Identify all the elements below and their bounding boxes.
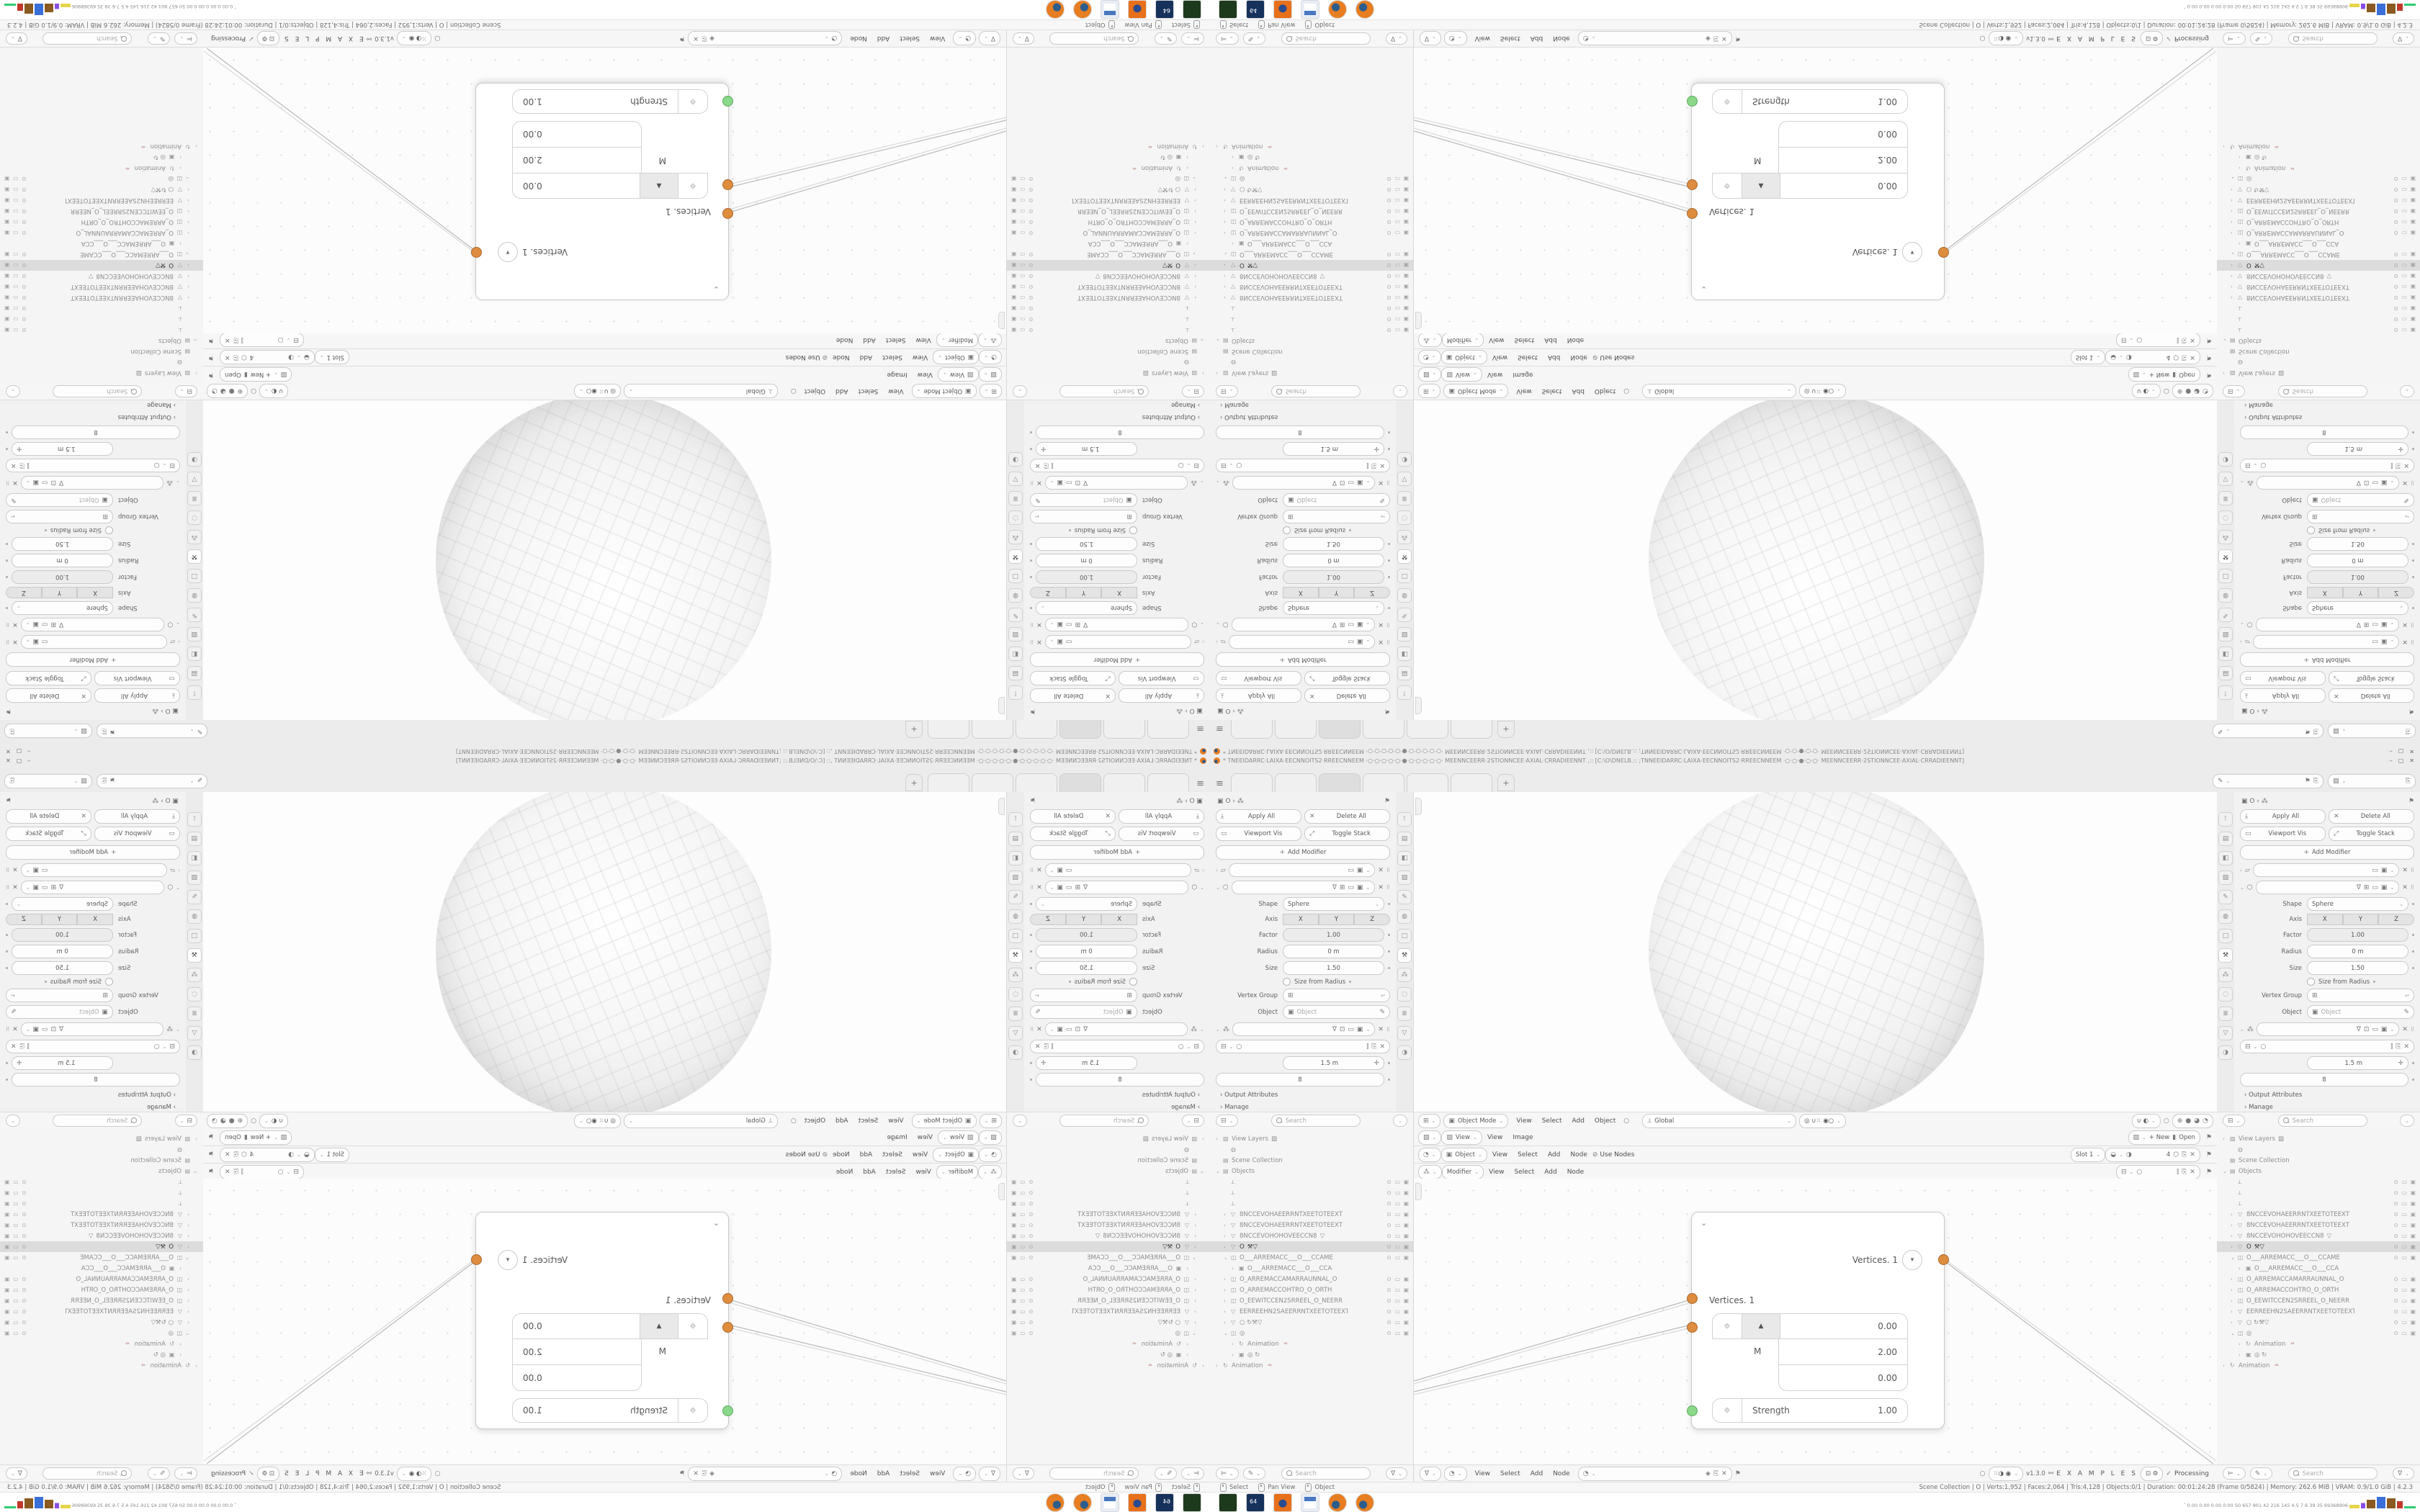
pin-icon[interactable]: ⚑ — [1735, 35, 1741, 42]
editor-type-button[interactable]: ▨⌄ — [979, 368, 1002, 382]
pin-icon[interactable]: ⚑ — [2206, 354, 2212, 361]
outliner-row[interactable]: ⌄ ◫ O___ARREMACC___O___CCAME ⊙ ▭ ▣ — [1210, 249, 1413, 260]
factor-field[interactable]: 1.00 — [12, 570, 113, 584]
properties-tab[interactable]: ≣ — [1008, 491, 1023, 505]
outliner-filter-button[interactable]: ∇⌄ — [1013, 32, 1034, 45]
menu-item[interactable]: Node — [1570, 354, 1587, 361]
menu-hamburger-icon[interactable]: ≡ — [1196, 778, 1204, 789]
hide-eye-toggle[interactable]: ⊙ — [2394, 294, 2398, 301]
outliner-row[interactable]: › ◫ O_ARREMACCOHTRO_O_ORTH ⊙ ▭ ▣ — [1007, 1284, 1210, 1295]
hide-eye-toggle[interactable]: ⊙ — [1028, 1254, 1033, 1261]
viewlayer-selector[interactable]: ▨ ⌄ ⎘ — [4, 724, 92, 738]
close-button[interactable]: ✕ — [2409, 757, 2414, 764]
render-camera-toggle[interactable]: ▣ — [4, 284, 9, 290]
outliner-row[interactable]: › ▽ O ⚒▽ ⊙ ▭ ▣ — [1007, 1241, 1210, 1252]
properties-tab[interactable]: ◍ — [2218, 588, 2233, 603]
hide-eye-toggle[interactable]: ⊙ — [22, 1200, 26, 1207]
modifier-row-expanded[interactable]: ⌄⬡ ∇⊞▭▣⌄ ✕⠿ — [6, 618, 180, 631]
snapping-toggles[interactable]: ◎ ∪⁙ ◉○⌄ — [574, 384, 621, 399]
viewport-vis-button[interactable]: ▭Viewport Vis — [2240, 671, 2326, 685]
shading-mode-button[interactable]: ● — [229, 1117, 235, 1125]
outliner-search[interactable]: Search — [2288, 1467, 2378, 1480]
properties-tab[interactable]: ⁂ — [1397, 968, 1412, 982]
render-camera-toggle[interactable]: ▣ — [4, 186, 9, 193]
viewport-toggle[interactable]: ▭ — [1020, 1179, 1025, 1185]
shading-mode-button[interactable]: ◔ — [2202, 1117, 2208, 1125]
editor-type-button[interactable]: ◔⌄ — [1444, 32, 1467, 46]
use-nodes-check-icon[interactable]: ⊘ — [1592, 1151, 1598, 1158]
properties-tab[interactable]: ◑ — [2218, 452, 2233, 467]
hide-eye-toggle[interactable]: ⊙ — [2394, 316, 2398, 323]
count-field[interactable]: 8 — [1216, 1073, 1384, 1086]
examples-menu[interactable]: E X A M P L E S — [2056, 1470, 2138, 1477]
viewport-toggle[interactable]: ▭ — [13, 1233, 18, 1239]
properties-tab[interactable]: ◍ — [1397, 909, 1412, 924]
hide-eye-toggle[interactable]: ⊙ — [1028, 1233, 1033, 1239]
outliner-row[interactable]: › ↻ Animation ⁴² ⊙ ▭ ▣ — [2217, 163, 2420, 174]
properties-tab[interactable]: ▤ — [1008, 666, 1023, 680]
options-button[interactable]: ⌄ — [1393, 385, 1407, 397]
hide-eye-toggle[interactable]: ⊙ — [1387, 1200, 1391, 1207]
count-field[interactable]: 8 — [1036, 1073, 1204, 1086]
size-from-radius-radio[interactable] — [1129, 978, 1137, 986]
viewport-toggle[interactable]: ▭ — [2402, 251, 2407, 258]
outliner-row[interactable]: › ▽ EERREEHN2SAEERRNTXEETOTEEXT ⊙ ▭ ▣ — [1210, 195, 1413, 206]
render-camera-toggle[interactable]: ▣ — [4, 273, 9, 279]
taskbar-app-icon[interactable] — [1073, 0, 1092, 19]
viewport-vis-button[interactable]: ▭Viewport Vis — [1119, 827, 1204, 841]
menu-item[interactable]: Select — [886, 337, 906, 344]
render-camera-toggle[interactable]: ▣ — [1011, 327, 1016, 333]
hide-eye-toggle[interactable]: ⊙ — [1028, 208, 1033, 215]
properties-tab[interactable]: □ — [1008, 929, 1023, 943]
outliner-row[interactable]: › ▽ EERREEHN2SAEERRNTXEETOTEEXT ⊙ ▭ ▣ — [0, 1306, 203, 1317]
shape-dropdown[interactable]: Sphere⌄ — [12, 601, 113, 615]
modifier-row-collapsed[interactable]: ›▱ ▭▣⌄ ✕⠿ — [2240, 635, 2414, 649]
viewport-vis-button[interactable]: ▭Viewport Vis — [1216, 827, 1301, 841]
outliner-row[interactable]: › ▽ EERREEHN2SAEERRNTXEETOTEEXT ⊙ ▭ ▣ — [1210, 1306, 1413, 1317]
hide-eye-toggle[interactable]: ⊙ — [22, 1233, 26, 1239]
render-camera-toggle[interactable]: ▣ — [4, 1330, 9, 1336]
open-image-button[interactable]: Open — [225, 372, 241, 379]
properties-tab[interactable]: ▤ — [1008, 832, 1023, 846]
cube-sphere-object[interactable] — [436, 393, 771, 720]
taskbar-app-icon[interactable] — [1301, 1493, 1319, 1512]
outliner-row[interactable]: ⌄ ▤ Objects ⊙ ▭ ▣ — [1007, 1166, 1210, 1176]
menu-item[interactable]: View — [918, 372, 933, 379]
outliner-filter-button[interactable]: ∇⌄ — [1386, 32, 1407, 45]
apply-all-button[interactable]: ⤓Apply All — [1119, 809, 1204, 824]
viewport-toggle[interactable]: ▭ — [1020, 1200, 1025, 1207]
viewport-3d[interactable]: ⊞⌄ ▣Object Mode⌄ ViewSelectAddObject ○ ⟂… — [1413, 792, 2218, 1129]
modifier-row-expanded[interactable]: ⌄⬡ ∇⊞▭▣⌄ ✕⠿ — [6, 881, 180, 894]
outliner-row[interactable]: › ▽ ○ ↻⚒▽ ⊙ ▭ ▣ — [1007, 1317, 1210, 1328]
properties-tab[interactable]: ⊺ — [1008, 812, 1023, 827]
viewport-toggle[interactable]: ▭ — [1020, 1222, 1025, 1228]
hide-eye-toggle[interactable]: ⊙ — [22, 1211, 26, 1218]
viewport-toggle[interactable]: ▭ — [1020, 305, 1025, 312]
pin-icon[interactable]: ⚑ — [2206, 1151, 2212, 1158]
render-camera-toggle[interactable]: ▣ — [4, 197, 9, 204]
outliner-row[interactable]: › ▽ 8NCCEVOHAEERRNTXEETOTEEXT ⊙ ▭ ▣ — [0, 282, 203, 292]
length-field[interactable]: 1.5 m✛ — [2307, 1056, 2408, 1070]
outliner-row[interactable]: ▤ Scene Collection ⊙ ▭ ▣ — [1210, 1155, 1413, 1166]
outliner-mode-button[interactable]: ⊨⌄ — [174, 1467, 197, 1480]
outliner-row[interactable]: ⟂ ⊙ ▭ ▣ — [1007, 1176, 1210, 1187]
hide-eye-toggle[interactable]: ⊙ — [2394, 186, 2398, 193]
taskbar-app-icon[interactable] — [1155, 1493, 1174, 1512]
nodegroup-selector[interactable]: ⊟⌄○⫿⎘✕ — [6, 1040, 180, 1053]
viewport-toggle[interactable]: ▭ — [2402, 273, 2407, 279]
input-socket-vector[interactable] — [722, 179, 733, 190]
outliner-display-button[interactable]: ✎⌄ — [1155, 32, 1177, 45]
modifier-row-collapsed[interactable]: ›▱ ▭▣⌄ ✕⠿ — [6, 863, 180, 877]
object-field[interactable]: ▣Object✎ — [1030, 1005, 1137, 1019]
taskbar-app-icon[interactable] — [1328, 0, 1347, 19]
minimize-button[interactable]: – — [2390, 749, 2393, 755]
properties-tab[interactable]: ⚒ — [1397, 948, 1412, 963]
hide-eye-toggle[interactable]: ⊙ — [1387, 1330, 1391, 1336]
outliner-row[interactable]: › ▽ 8NCCEVOHOHOVEECCN8 ▽ ⊙ ▭ ▣ — [0, 271, 203, 282]
outliner-row[interactable]: › ↻ Animation ⁴² ⊙ ▭ ▣ — [1007, 163, 1210, 174]
outliner-row[interactable]: ⟂ ⊙ ▭ ▣ — [1210, 1176, 1413, 1187]
viewport-toggle[interactable]: ▭ — [1020, 273, 1025, 279]
mode-dropdown[interactable]: ▣Object Mode⌄ — [1443, 1114, 1508, 1128]
outliner-row[interactable]: › ▽ 8NCCEVOHAEERRNTXEETOTEEXT ⊙ ▭ ▣ — [2217, 292, 2420, 303]
viewport-toggle[interactable]: ▭ — [13, 1330, 18, 1336]
properties-tab[interactable]: ◧ — [2218, 851, 2233, 865]
length-field[interactable]: 1.5 m✛ — [1036, 442, 1137, 456]
properties-tab[interactable]: ◍ — [187, 909, 202, 924]
outliner-row[interactable]: › ▽ 8NCCEVOHAEERRNTXEETOTEEXT ⊙ ▭ ▣ — [1210, 1220, 1413, 1230]
menu-item[interactable]: Select — [882, 354, 902, 361]
menu-item[interactable]: Add — [863, 1169, 875, 1176]
render-camera-toggle[interactable]: ▣ — [1011, 208, 1016, 215]
properties-tab[interactable]: ▽ — [1008, 1026, 1023, 1040]
hide-eye-toggle[interactable]: ⊙ — [2394, 1233, 2398, 1239]
outliner-row[interactable]: › ▽ ○ ↻⚒▽ ⊙ ▭ ▣ — [1210, 1317, 1413, 1328]
render-camera-toggle[interactable]: ▣ — [2411, 294, 2416, 301]
outliner-row[interactable]: › ▽ EERREEHN2SAEERRNTXEETOTEEXT ⊙ ▭ ▣ — [1007, 195, 1210, 206]
outliner-row[interactable]: › ↻ Animation ⁴² ⊙ ▭ ▣ — [1007, 141, 1210, 152]
pin-icon[interactable]: ⚑ — [1384, 798, 1390, 805]
add-modifier-button[interactable]: +Add Modifier — [6, 652, 180, 667]
render-camera-toggle[interactable]: ▣ — [1011, 1254, 1016, 1261]
render-camera-toggle[interactable]: ▣ — [4, 1276, 9, 1282]
manage-expander[interactable]: › Manage — [1220, 1104, 1390, 1111]
hide-eye-toggle[interactable]: ⊙ — [1028, 294, 1033, 301]
render-camera-toggle[interactable]: ▣ — [1404, 1308, 1409, 1315]
toggle-stack-button[interactable]: ⤢Toggle Stack — [1304, 827, 1390, 841]
vector-x-field[interactable]: 0.00 — [512, 173, 640, 199]
vector-z-field[interactable]: 0.00 — [512, 1365, 642, 1391]
hide-eye-toggle[interactable]: ⊙ — [1387, 1297, 1391, 1304]
render-camera-toggle[interactable]: ▣ — [4, 1189, 9, 1196]
modifier-row-collapsed[interactable]: ›▱ ▭▣⌄ ✕⠿ — [2240, 863, 2414, 877]
render-camera-toggle[interactable]: ▣ — [2411, 1211, 2416, 1218]
apply-all-button[interactable]: ⤓Apply All — [1216, 809, 1301, 824]
outliner-row[interactable]: › ◫ O_ARREMACCOHTRO_O_ORTH ⊙ ▭ ▣ — [2217, 217, 2420, 228]
overlay-circle-icon[interactable]: ○ — [2164, 1117, 2169, 1125]
render-camera-toggle[interactable]: ▣ — [1011, 1200, 1016, 1207]
axis-option[interactable]: X — [1283, 914, 1319, 925]
input-socket-strength[interactable] — [722, 96, 733, 107]
material-selector[interactable]: ◒⌄◑ 4 ⬡⎘✕ — [220, 1148, 315, 1162]
outliner-row[interactable]: ⟂ ⊙ ▭ ▣ — [2217, 1187, 2420, 1198]
processing-check-icon[interactable]: ✓ — [248, 35, 254, 42]
editor-type-button[interactable]: ⊟⌄ — [1216, 1115, 1238, 1127]
add-modifier-button[interactable]: +Add Modifier — [1216, 845, 1390, 860]
editor-type-button[interactable]: ◔⌄ — [979, 1148, 1002, 1162]
factor-field[interactable]: 1.00 — [1036, 928, 1137, 942]
outliner-row[interactable]: ⌄ ▤ Objects ⊙ ▭ ▣ — [1210, 336, 1413, 346]
outliner-filter-button[interactable]: ∇⌄ — [6, 1467, 27, 1480]
menu-item[interactable]: Object — [1595, 1117, 1615, 1125]
menu-item[interactable]: Node — [850, 35, 867, 42]
viewport-toggle[interactable]: ▭ — [13, 1276, 18, 1282]
axis-segmented[interactable]: XYZ — [1283, 914, 1390, 925]
output-socket[interactable] — [471, 1254, 482, 1265]
viewport-vis-button[interactable]: ▭Viewport Vis — [1216, 671, 1301, 685]
outliner-row[interactable]: ⌄ ◫ O___ARREMACC___O___CCAME ⊙ ▭ ▣ — [1007, 249, 1210, 260]
hide-eye-toggle[interactable]: ⊙ — [1028, 197, 1033, 204]
manage-expander[interactable]: › Manage — [1220, 401, 1390, 408]
viewport-toggle[interactable]: ▭ — [1395, 1189, 1400, 1196]
apply-all-button[interactable]: ⤓Apply All — [2240, 688, 2326, 703]
outliner-row[interactable]: › ◫ O_ARREMACCOHTRO_O_ORTH ⊙ ▭ ▣ — [1210, 1284, 1413, 1295]
outliner-row[interactable]: ⌄ ◫ O___ARREMACC___O___CCAME ⊙ ▭ ▣ — [1007, 1252, 1210, 1263]
menu-item[interactable]: Add — [860, 354, 872, 361]
workspace-tab[interactable] — [1451, 773, 1492, 792]
outliner-row[interactable]: › ▽ ○ ↻⚒▽ ⊙ ▭ ▣ — [1210, 184, 1413, 195]
menu-item[interactable]: Add — [1531, 35, 1543, 42]
render-camera-toggle[interactable]: ▣ — [1404, 262, 1409, 269]
viewport-toggle[interactable]: ▭ — [13, 1189, 18, 1196]
shading-mode-button[interactable]: ◕ — [220, 1117, 226, 1125]
hide-eye-toggle[interactable]: ⊙ — [22, 1297, 26, 1304]
duplicate-icon[interactable]: ⎘ — [2406, 727, 2411, 734]
editor-type-button[interactable]: ▨⌄ — [1418, 368, 1441, 382]
viewport-toggle[interactable]: ▭ — [13, 1297, 18, 1304]
nodegroup-name-field[interactable]: ◔⌄ ◈⎘✕ — [688, 32, 842, 46]
outliner-mode-button[interactable]: ⊨⌄ — [2223, 32, 2246, 45]
toolbar-handle[interactable] — [1415, 1183, 1422, 1200]
strength-field[interactable]: ⟐ Strength 1.00 — [512, 89, 708, 114]
axis-option[interactable]: X — [2307, 587, 2343, 598]
outliner-mode-button[interactable]: ⊨⌄ — [1216, 32, 1239, 45]
geonodes-modifier-row[interactable]: ⌄⁂ ∇⊡▭▣⌄ ✕⠿ — [1030, 476, 1204, 490]
viewport-toggle[interactable]: ▭ — [1395, 1233, 1400, 1239]
toolbar-handle[interactable] — [998, 1183, 1005, 1200]
hide-eye-toggle[interactable]: ⊙ — [1028, 1243, 1033, 1250]
size-field[interactable]: 1.50 — [12, 961, 113, 975]
properties-tab[interactable]: ⊺ — [1397, 685, 1412, 700]
annotate-circle-icon[interactable]: ○ — [1623, 1117, 1629, 1125]
outliner-mode-button[interactable]: ⊨⌄ — [1216, 1467, 1239, 1480]
pin-icon[interactable]: ⚑ — [2206, 337, 2212, 344]
overlay-dot-icon[interactable]: ○ — [1980, 1470, 1986, 1477]
render-camera-toggle[interactable]: ▣ — [4, 1254, 9, 1261]
viewport-toggle[interactable]: ▭ — [13, 1308, 18, 1315]
outliner-row[interactable]: › ▽ 8NCCEVOHOHOVEECCN8 ▽ ⊙ ▭ ▣ — [1007, 1230, 1210, 1241]
editor-type-button[interactable]: ⊞⌄ — [980, 384, 1002, 399]
properties-tab[interactable]: ◍ — [1008, 588, 1023, 603]
overlay-circle-icon[interactable]: ○ — [251, 388, 256, 395]
outliner-row[interactable]: ◍ ⊙ ▭ ▣ — [1007, 357, 1210, 368]
outliner-mode-button[interactable]: ⊨⌄ — [2223, 1467, 2246, 1480]
options-button[interactable]: ⌄ — [2400, 385, 2414, 397]
manage-expander[interactable]: › Manage — [6, 401, 176, 408]
vertex-group-field[interactable]: ⊞↩ — [1283, 510, 1390, 523]
hide-eye-toggle[interactable]: ⊙ — [1387, 327, 1391, 333]
hide-eye-toggle[interactable]: ⊙ — [1387, 1254, 1391, 1261]
add-modifier-button[interactable]: +Add Modifier — [6, 845, 180, 860]
viewport-toggle[interactable]: ▭ — [1020, 219, 1025, 225]
pin-icon[interactable]: ⚑ — [1735, 1470, 1741, 1477]
properties-search[interactable]: Search — [1059, 385, 1149, 397]
outliner-row[interactable]: ⌄ ◫ ◎ ⊙ ▭ ▣ — [2217, 174, 2420, 184]
toolbar-handle[interactable] — [1415, 312, 1422, 329]
hide-eye-toggle[interactable]: ⊙ — [22, 208, 26, 215]
render-camera-toggle[interactable]: ▣ — [1011, 1319, 1016, 1326]
viewport-toggle[interactable]: ▭ — [2402, 305, 2407, 312]
examples-menu[interactable]: E X A M P L E S — [282, 1470, 364, 1477]
properties-tab[interactable]: ◌ — [2218, 510, 2233, 525]
input-socket-vector[interactable] — [1687, 179, 1698, 190]
outliner-row[interactable]: › ▽ 8NCCEVOHAEERRNTXEETOTEEXT ⊙ ▭ ▣ — [2217, 1220, 2420, 1230]
output-attributes-expander[interactable]: › Output Attributes — [1220, 1092, 1390, 1099]
size-from-radius-radio[interactable] — [2307, 526, 2315, 534]
outliner-row[interactable]: › ↻ Animation ⁴² ⊙ ▭ ▣ — [2217, 1338, 2420, 1349]
size-field[interactable]: 1.50 — [2307, 537, 2408, 551]
hide-eye-toggle[interactable]: ⊙ — [1387, 197, 1391, 204]
outliner-row[interactable]: › ↻ Animation ⁴² ⊙ ▭ ▣ — [2217, 141, 2420, 152]
properties-tab[interactable]: ≣ — [1008, 1007, 1023, 1021]
properties-tab[interactable]: ⚒ — [1008, 549, 1023, 564]
properties-tab[interactable]: ▨ — [187, 627, 202, 642]
outliner-row[interactable]: ⌄ ▤ Objects ⊙ ▭ ▣ — [2217, 336, 2420, 346]
delete-all-button[interactable]: ✕Delete All — [1030, 688, 1116, 703]
pin-icon[interactable]: ⚑ — [6, 798, 12, 805]
menu-item[interactable]: Add — [1572, 1117, 1584, 1125]
menu-item[interactable]: Select — [900, 1470, 920, 1477]
hide-eye-toggle[interactable]: ⊙ — [22, 197, 26, 204]
grid-gear-toggles[interactable]: ⊡ ⚙ — [2141, 1467, 2163, 1481]
viewport-3d[interactable]: ⊞⌄ ▣Object Mode⌄ ViewSelectAddObject ○ ⟂… — [202, 792, 1007, 1129]
workspace-tab[interactable] — [1059, 720, 1101, 739]
outliner-row[interactable]: › ▽ 8NCCEVOHAEERRNTXEETOTEEXT ⊙ ▭ ▣ — [0, 1220, 203, 1230]
workspace-tab[interactable] — [1451, 720, 1492, 739]
properties-tab[interactable]: ▤ — [1397, 666, 1412, 680]
render-camera-toggle[interactable]: ▣ — [2411, 186, 2416, 193]
hide-eye-toggle[interactable]: ⊙ — [22, 1330, 26, 1336]
outliner-row[interactable]: ⌄ ▤ Objects ⊙ ▭ ▣ — [0, 1166, 203, 1176]
examples-menu[interactable]: E X A M P L E S — [282, 35, 364, 42]
taskbar-app-icon[interactable] — [1046, 1493, 1065, 1512]
viewport-toggle[interactable]: ▭ — [13, 186, 18, 193]
outliner-display-button[interactable]: ✎⌄ — [148, 32, 170, 45]
render-camera-toggle[interactable]: ▣ — [2411, 1243, 2416, 1250]
image-context-dropdown[interactable]: ▨View⌄ — [1441, 368, 1482, 382]
outliner-row[interactable]: › ◫ O_ARREMACCOHTRO_O_ORTH ⊙ ▭ ▣ — [0, 1284, 203, 1295]
length-field[interactable]: 1.5 m✛ — [1283, 1056, 1384, 1070]
output-socket[interactable] — [1938, 247, 1949, 258]
vector-z-field[interactable]: 0.00 — [1778, 1365, 1908, 1391]
hide-eye-toggle[interactable]: ⊙ — [1028, 1287, 1033, 1293]
render-camera-toggle[interactable]: ▣ — [2411, 1276, 2416, 1282]
geonodes-modifier-row[interactable]: ⌄⁂ ∇⊡▭▣⌄ ✕⠿ — [2240, 1022, 2414, 1036]
outliner-row[interactable]: › ▽ O ⚒▽ ⊙ ▭ ▣ — [2217, 1241, 2420, 1252]
count-field[interactable]: 8 — [12, 426, 180, 439]
properties-tab[interactable]: ≣ — [187, 1007, 202, 1021]
viewport-toggle[interactable]: ▭ — [13, 176, 18, 182]
duplicate-icon[interactable]: ⎘ — [9, 727, 14, 734]
hide-eye-toggle[interactable]: ⊙ — [22, 305, 26, 312]
menu-item[interactable]: Select — [882, 1151, 902, 1158]
properties-tab[interactable]: ⊺ — [1008, 685, 1023, 700]
overlay-circle-icon[interactable]: ○ — [2164, 388, 2169, 395]
gizmo-toggles[interactable]: ∪ ◐⌄ — [2132, 384, 2161, 399]
properties-tab[interactable]: ⁂ — [1008, 968, 1023, 982]
geonodes-context-dropdown[interactable]: Modifier⌄ — [1442, 333, 1484, 348]
filter-button[interactable]: ∇⌄ — [979, 1467, 1000, 1481]
duplicate-icon[interactable]: ⎘ — [2406, 778, 2411, 785]
viewport-toggle[interactable]: ▭ — [1395, 1330, 1400, 1336]
menu-item[interactable]: View — [888, 1117, 903, 1125]
slot-dropdown[interactable]: Slot 1⌄ — [2071, 1148, 2105, 1162]
render-camera-toggle[interactable]: ▣ — [2411, 273, 2416, 279]
properties-tab[interactable]: ≣ — [1397, 491, 1412, 505]
outliner-row[interactable]: ⟂ ⊙ ▭ ▣ — [0, 1198, 203, 1209]
outliner-row[interactable]: › ▽ O ⚒▽ ⊙ ▭ ▣ — [1210, 1241, 1413, 1252]
object-field[interactable]: ▣Object✎ — [2307, 493, 2414, 507]
render-camera-toggle[interactable]: ▣ — [1404, 1297, 1409, 1304]
menu-item[interactable]: Select — [900, 35, 920, 42]
vertex-group-field[interactable]: ⊞↩ — [1283, 989, 1390, 1002]
hide-eye-toggle[interactable]: ⊙ — [2394, 273, 2398, 279]
render-camera-toggle[interactable]: ▣ — [2411, 197, 2416, 204]
axis-option[interactable]: Y — [2343, 914, 2379, 925]
count-field[interactable]: 8 — [1036, 426, 1204, 439]
viewport-toggle[interactable]: ▭ — [1395, 273, 1400, 279]
hide-eye-toggle[interactable]: ⊙ — [22, 1189, 26, 1196]
nodegroup-selector[interactable]: ⊟⌄○⫿⎘✕ — [2240, 459, 2414, 472]
node-collapse-chevron[interactable]: ⌄ — [1700, 1218, 1707, 1228]
outliner-row[interactable]: › ▽ 8NCCEVOHAEERRNTXEETOTEEXT ⊙ ▭ ▣ — [1007, 1220, 1210, 1230]
axis-option[interactable]: Z — [6, 914, 42, 925]
render-camera-toggle[interactable]: ▣ — [4, 294, 9, 301]
render-camera-toggle[interactable]: ▣ — [1011, 1276, 1016, 1282]
object-field[interactable]: ▣Object✎ — [2307, 1005, 2414, 1019]
hide-eye-toggle[interactable]: ⊙ — [22, 1222, 26, 1228]
viewport-vis-button[interactable]: ▭Viewport Vis — [2240, 827, 2326, 841]
vertices-node[interactable]: ⌄ Vertices. 1 ▾ Vertices. 1 ⟐ ▲ 0. — [475, 83, 729, 300]
hide-eye-toggle[interactable]: ⊙ — [1028, 230, 1033, 236]
toolbar-handle[interactable] — [1415, 697, 1422, 714]
properties-tab[interactable]: ⁂ — [1397, 530, 1412, 544]
outliner-row[interactable]: › ▣ O___ARREMACC___O___CCA ⊙ ▭ ▣ — [1007, 1263, 1210, 1274]
editor-type-button[interactable]: ▨⌄ — [979, 1130, 1002, 1145]
vector-y-field[interactable]: 2.00 — [512, 147, 642, 173]
shader-context-dropdown[interactable]: ▣Object⌄ — [933, 1148, 979, 1162]
factor-field[interactable]: 1.00 — [12, 928, 113, 942]
properties-tab[interactable]: □ — [187, 569, 202, 583]
hide-eye-toggle[interactable]: ⊙ — [1028, 1308, 1033, 1315]
render-camera-toggle[interactable]: ▣ — [4, 1179, 9, 1185]
properties-tab[interactable]: □ — [2218, 569, 2233, 583]
add-workspace-button[interactable]: + — [905, 721, 923, 738]
outliner-row[interactable]: › ◫ O_EEWITCCEN2SRREEL_O_NEERR ⊙ ▭ ▣ — [1007, 1295, 1210, 1306]
